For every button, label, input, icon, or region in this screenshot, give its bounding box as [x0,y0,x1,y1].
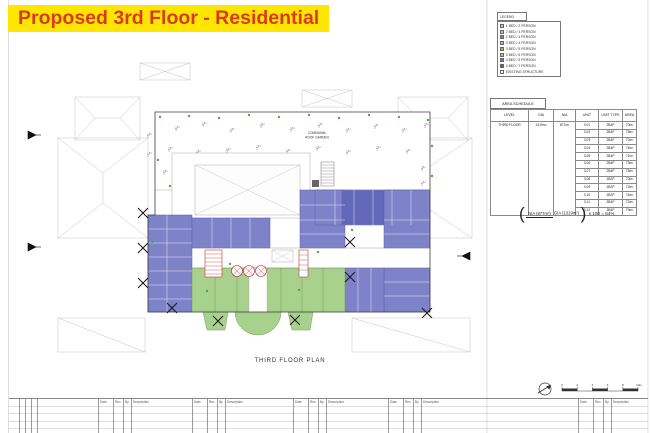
formula-denominator: GIA (1319m²) [554,210,579,216]
scale-bar: 0 2 4 6 8 10m [561,383,642,391]
garden-label: COMMUNAL [308,131,327,135]
col-header: UNIT TYPE [599,110,623,122]
legend-box: 1 BED / 2 PERSON 2 BED / 3 PERSON 2 BED … [497,21,561,78]
svg-text:8: 8 [622,383,624,387]
unit-block-left-wing [148,215,192,312]
page-title: Proposed 3rd Floor - Residential [8,5,329,32]
area-schedule-table: LEVEL GIA NIA UNIT UNIT TYPE AREA THIRD … [490,109,637,216]
table-row: THIRD FLOOR 1319m² 877m² 3.012B4P70m² [491,122,637,130]
col-header: AREA [623,110,637,122]
atrium-rooflight [172,153,310,218]
legend-title: LEGEND [497,12,527,21]
north-arrow-icon [538,383,551,395]
nia-cell: 877m² [554,122,576,216]
legend-swatch [500,70,504,74]
legend-swatch [500,53,504,57]
unit-block-right-wing-lower [384,268,430,312]
revision-header-group: Date Rev By Description [192,399,280,433]
legend-swatch [500,35,504,39]
revision-header-group: Date Rev By Description [388,399,476,433]
svg-text:6: 6 [607,383,609,387]
green-bow-front [235,312,281,335]
svg-text:0: 0 [561,383,563,387]
legend-swatch [500,64,504,68]
gia-cell: 1319m² [529,122,554,216]
drawing-sheet: COMMUNAL ROOF GARDEN [0,0,650,433]
col-header: NIA [554,110,576,122]
legend-swatch [500,41,504,45]
svg-text:2: 2 [576,383,578,387]
col-header: UNIT [576,110,599,122]
legend-item: EXISTING STRUCTURE [500,69,558,75]
formula-numerator: NIA (877m²) [526,211,553,218]
area-schedule: AREA SCHEDULE LEVEL GIA NIA UNIT UNIT TY… [490,98,637,216]
garden-label: ROOF GARDEN [305,135,329,139]
green-bay-right [288,312,313,330]
efficiency-formula: ( NIA (877m²) GIA (1319m²) ) x 100 = 64% [519,205,614,222]
unit-block-right-inner [345,268,384,312]
legend-swatch [500,30,504,34]
legend-swatch [500,47,504,51]
legend-swatch [500,58,504,62]
legend-swatch [500,24,504,28]
unit-block-dark [342,191,384,224]
revision-header-group: Date Rev By Description [578,399,650,433]
plan-caption: THIRD FLOOR PLAN [225,358,355,364]
svg-text:4: 4 [592,383,594,387]
formula-result: x 100 = 64% [589,211,615,216]
col-header: GIA [529,110,554,122]
level-cell: THIRD FLOOR [491,122,529,216]
legend: LEGEND 1 BED / 2 PERSON 2 BED / 3 PERSON… [497,12,561,77]
unit-block-right-wing-upper [384,190,430,248]
col-header: LEVEL [491,110,529,122]
revision-header-group: Date Rev By Description [293,399,381,433]
revision-header-group: Date Rev By Description [98,399,186,433]
area-schedule-title: AREA SCHEDULE [490,98,546,109]
green-bay-left [203,312,228,330]
svg-text:10m: 10m [636,383,642,387]
revision-strip: Date Rev By Description Date Rev By Desc… [9,398,648,433]
